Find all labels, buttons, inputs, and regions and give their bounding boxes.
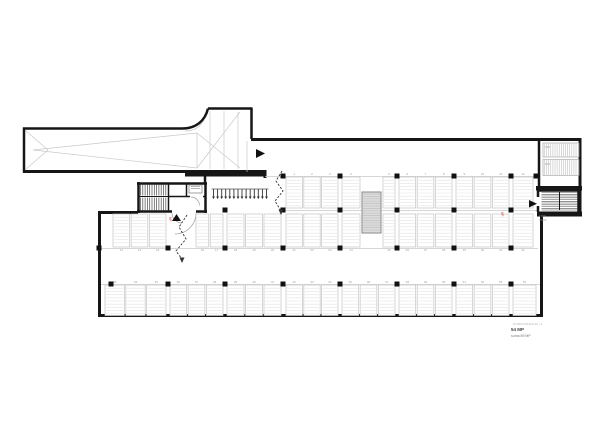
floor-plan-drawing: 1234567891011121314151617181920212223242… xyxy=(0,0,600,424)
column xyxy=(452,208,457,213)
parking-stall xyxy=(417,177,434,208)
column xyxy=(338,174,343,179)
parking-stall xyxy=(188,285,205,316)
column xyxy=(166,246,171,251)
stall-number: 14 xyxy=(138,248,142,252)
parking-stall xyxy=(131,214,148,247)
parking-stall xyxy=(227,285,244,316)
bike-rack-tip-icon xyxy=(245,197,248,200)
stall-number: 48 xyxy=(406,280,410,284)
parking-stall xyxy=(170,285,187,316)
parking-stall xyxy=(417,214,434,247)
route-zigzag-icon xyxy=(176,215,187,259)
column xyxy=(109,282,114,287)
column xyxy=(395,282,400,287)
parking-stall xyxy=(342,285,359,316)
bike-rack-tip-icon xyxy=(237,197,240,200)
stall-number: 43 xyxy=(310,280,314,284)
legend-note: · KONDYGNACJA -1 xyxy=(511,322,542,326)
ramp-wing xyxy=(23,108,265,184)
area-legend: · KONDYGNACJA -1 54 MP suma 89 MP xyxy=(511,322,542,338)
column xyxy=(281,282,286,287)
parking-stall xyxy=(435,285,452,316)
parking-stall xyxy=(264,285,281,316)
bike-rack-tip-icon xyxy=(249,197,252,200)
parking-stall xyxy=(342,177,360,208)
stall-number: 1 xyxy=(293,172,295,176)
bike-rack-tip-icon xyxy=(216,197,219,200)
bike-rack-tip-icon xyxy=(228,197,231,200)
stair-dim-label: h=220 xyxy=(539,218,547,222)
column xyxy=(395,174,400,179)
stall-number: 44 xyxy=(328,280,332,284)
bike-rack-tip-icon xyxy=(220,197,223,200)
stall-number: 52 xyxy=(481,280,485,284)
parking-stall xyxy=(304,177,320,208)
column xyxy=(338,246,343,251)
hydrant-label: HP xyxy=(168,217,172,221)
parking-stall xyxy=(246,285,263,316)
stall-number: 37 xyxy=(195,280,199,284)
stall-number: 27 xyxy=(424,248,428,252)
bike-rack-tip-icon xyxy=(224,197,227,200)
stall-number: 40 xyxy=(252,280,256,284)
parking-stall xyxy=(492,214,509,247)
column xyxy=(509,208,514,213)
column xyxy=(452,282,457,287)
column xyxy=(281,174,286,179)
stall-number: 8 xyxy=(443,172,445,176)
floor-plan-canvas: 1234567891011121314151617181920212223242… xyxy=(0,0,600,424)
parking-stall xyxy=(360,285,377,316)
stall-number: 13 xyxy=(120,248,124,252)
parking-stall xyxy=(435,177,452,208)
ramp-slope-label: 15% xyxy=(545,145,551,149)
stall-number: 39 xyxy=(234,280,238,284)
bike-rack-tip-icon xyxy=(233,197,236,200)
parking-stall xyxy=(399,214,416,247)
parking-stall xyxy=(286,214,302,247)
column xyxy=(452,246,457,251)
stall-number: 42 xyxy=(292,280,296,284)
route-arrowhead-icon xyxy=(180,258,185,264)
stall-number: 45 xyxy=(349,280,353,284)
stall-number: 46 xyxy=(367,280,371,284)
stall-number: 17 xyxy=(215,248,219,252)
stair-treads xyxy=(141,185,166,211)
parking-stall xyxy=(378,285,395,316)
stall-number: 20 xyxy=(271,248,275,252)
stairwell-right xyxy=(537,190,580,212)
parking-stall xyxy=(456,177,473,208)
stall-number: 25 xyxy=(387,248,391,252)
column xyxy=(395,208,400,213)
parking-stall xyxy=(206,285,223,316)
parking-stall xyxy=(342,214,360,247)
stall-number: 16 xyxy=(201,248,205,252)
stall-number: 30 xyxy=(481,248,485,252)
parking-stalls: 1234567891011121314151617181920212223242… xyxy=(105,172,536,315)
stall-number: 26 xyxy=(406,248,410,252)
door-swing-arc xyxy=(175,213,196,234)
stall-number: 41 xyxy=(271,280,275,284)
stall-number: 21 xyxy=(292,248,296,252)
column xyxy=(338,282,343,287)
legend-count: 54 MP xyxy=(511,327,542,332)
hydrant-label: HP xyxy=(500,212,504,216)
legend-sum: suma 89 MP xyxy=(511,334,542,338)
parking-stall xyxy=(105,285,124,316)
parking-stall xyxy=(383,177,395,208)
stall-number: 24 xyxy=(349,248,353,252)
parking-stall xyxy=(113,214,130,247)
stall-number: 11 xyxy=(499,172,502,176)
parking-stall xyxy=(513,285,536,316)
column xyxy=(452,174,457,179)
parking-stall xyxy=(474,214,491,247)
parking-stall xyxy=(227,214,244,247)
column xyxy=(166,282,171,287)
parking-stall xyxy=(399,285,416,316)
stall-number: 23 xyxy=(328,248,332,252)
stall-number: 6 xyxy=(406,172,408,176)
column xyxy=(223,208,228,213)
bike-rack-tip-icon xyxy=(265,197,268,200)
parking-stall xyxy=(264,214,281,247)
parking-stall xyxy=(383,214,395,247)
stall-number: 47 xyxy=(385,280,389,284)
column xyxy=(395,246,400,251)
elevator-shaft xyxy=(362,192,381,233)
column xyxy=(509,174,514,179)
bike-rack-tip-icon xyxy=(212,197,215,200)
stall-number: 54 xyxy=(523,280,527,284)
stall-number: 12 xyxy=(521,172,525,176)
parking-stall xyxy=(474,177,491,208)
bike-racks xyxy=(212,189,269,199)
stall-number: 3 xyxy=(329,172,331,176)
parking-stall xyxy=(286,285,302,316)
column xyxy=(223,246,228,251)
parking-stall xyxy=(126,285,145,316)
column xyxy=(97,246,102,251)
column xyxy=(338,208,343,213)
stall-number: 29 xyxy=(463,248,467,252)
stall-number: 9 xyxy=(463,172,465,176)
stall-number: 34 xyxy=(134,280,138,284)
entry-arrow-icon xyxy=(256,149,265,158)
stall-number: 10 xyxy=(481,172,485,176)
parking-stall xyxy=(492,177,509,208)
parking-stall xyxy=(322,214,338,247)
stall-number: 7 xyxy=(425,172,427,176)
bike-rack-tip-icon xyxy=(241,197,244,200)
parking-stall xyxy=(456,285,473,316)
stall-number: 19 xyxy=(252,248,256,252)
exit-ramp xyxy=(536,141,582,191)
column xyxy=(223,282,228,287)
stall-number: 4 xyxy=(350,172,352,176)
parking-stall xyxy=(474,285,491,316)
stall-number: 38 xyxy=(213,280,217,284)
stall-number: 31 xyxy=(499,248,503,252)
ramp-slope-label: 15% xyxy=(545,162,551,166)
parking-stall xyxy=(322,177,338,208)
stair-dim-label: 17/29 xyxy=(539,214,546,218)
stall-number: 5 xyxy=(388,172,390,176)
stall-number: 18 xyxy=(234,248,238,252)
column xyxy=(281,246,286,251)
stall-number: 36 xyxy=(177,280,181,284)
parking-stall xyxy=(147,285,166,316)
stall-number: 49 xyxy=(424,280,428,284)
parking-stall xyxy=(304,285,320,316)
stall-number: 50 xyxy=(442,280,446,284)
parking-stall xyxy=(492,285,509,316)
stall-number: 53 xyxy=(499,280,503,284)
bike-rack-tip-icon xyxy=(253,197,256,200)
stall-number: 33 xyxy=(113,280,117,284)
stall-number: 35 xyxy=(155,280,159,284)
parking-stall xyxy=(322,285,338,316)
stall-number: 15 xyxy=(156,248,160,252)
parking-stall xyxy=(435,214,452,247)
column xyxy=(509,246,514,251)
parking-stall xyxy=(304,214,320,247)
stall-number: 22 xyxy=(310,248,314,252)
parking-stall xyxy=(196,214,209,247)
parking-stall xyxy=(149,214,166,247)
parking-stall xyxy=(456,214,473,247)
stall-number: 28 xyxy=(442,248,446,252)
parking-stall xyxy=(246,214,263,247)
parking-stall xyxy=(286,177,302,208)
stall-number: 51 xyxy=(463,280,467,284)
stall-number: 32 xyxy=(521,248,525,252)
parking-stall xyxy=(210,214,223,247)
bike-rack-tip-icon xyxy=(261,197,264,200)
stall-number: 2 xyxy=(311,172,313,176)
parking-stall xyxy=(399,177,416,208)
column xyxy=(509,282,514,287)
bike-rack-tip-icon xyxy=(257,197,260,200)
parking-stall xyxy=(513,214,533,247)
parking-stall xyxy=(417,285,434,316)
column xyxy=(534,174,539,179)
